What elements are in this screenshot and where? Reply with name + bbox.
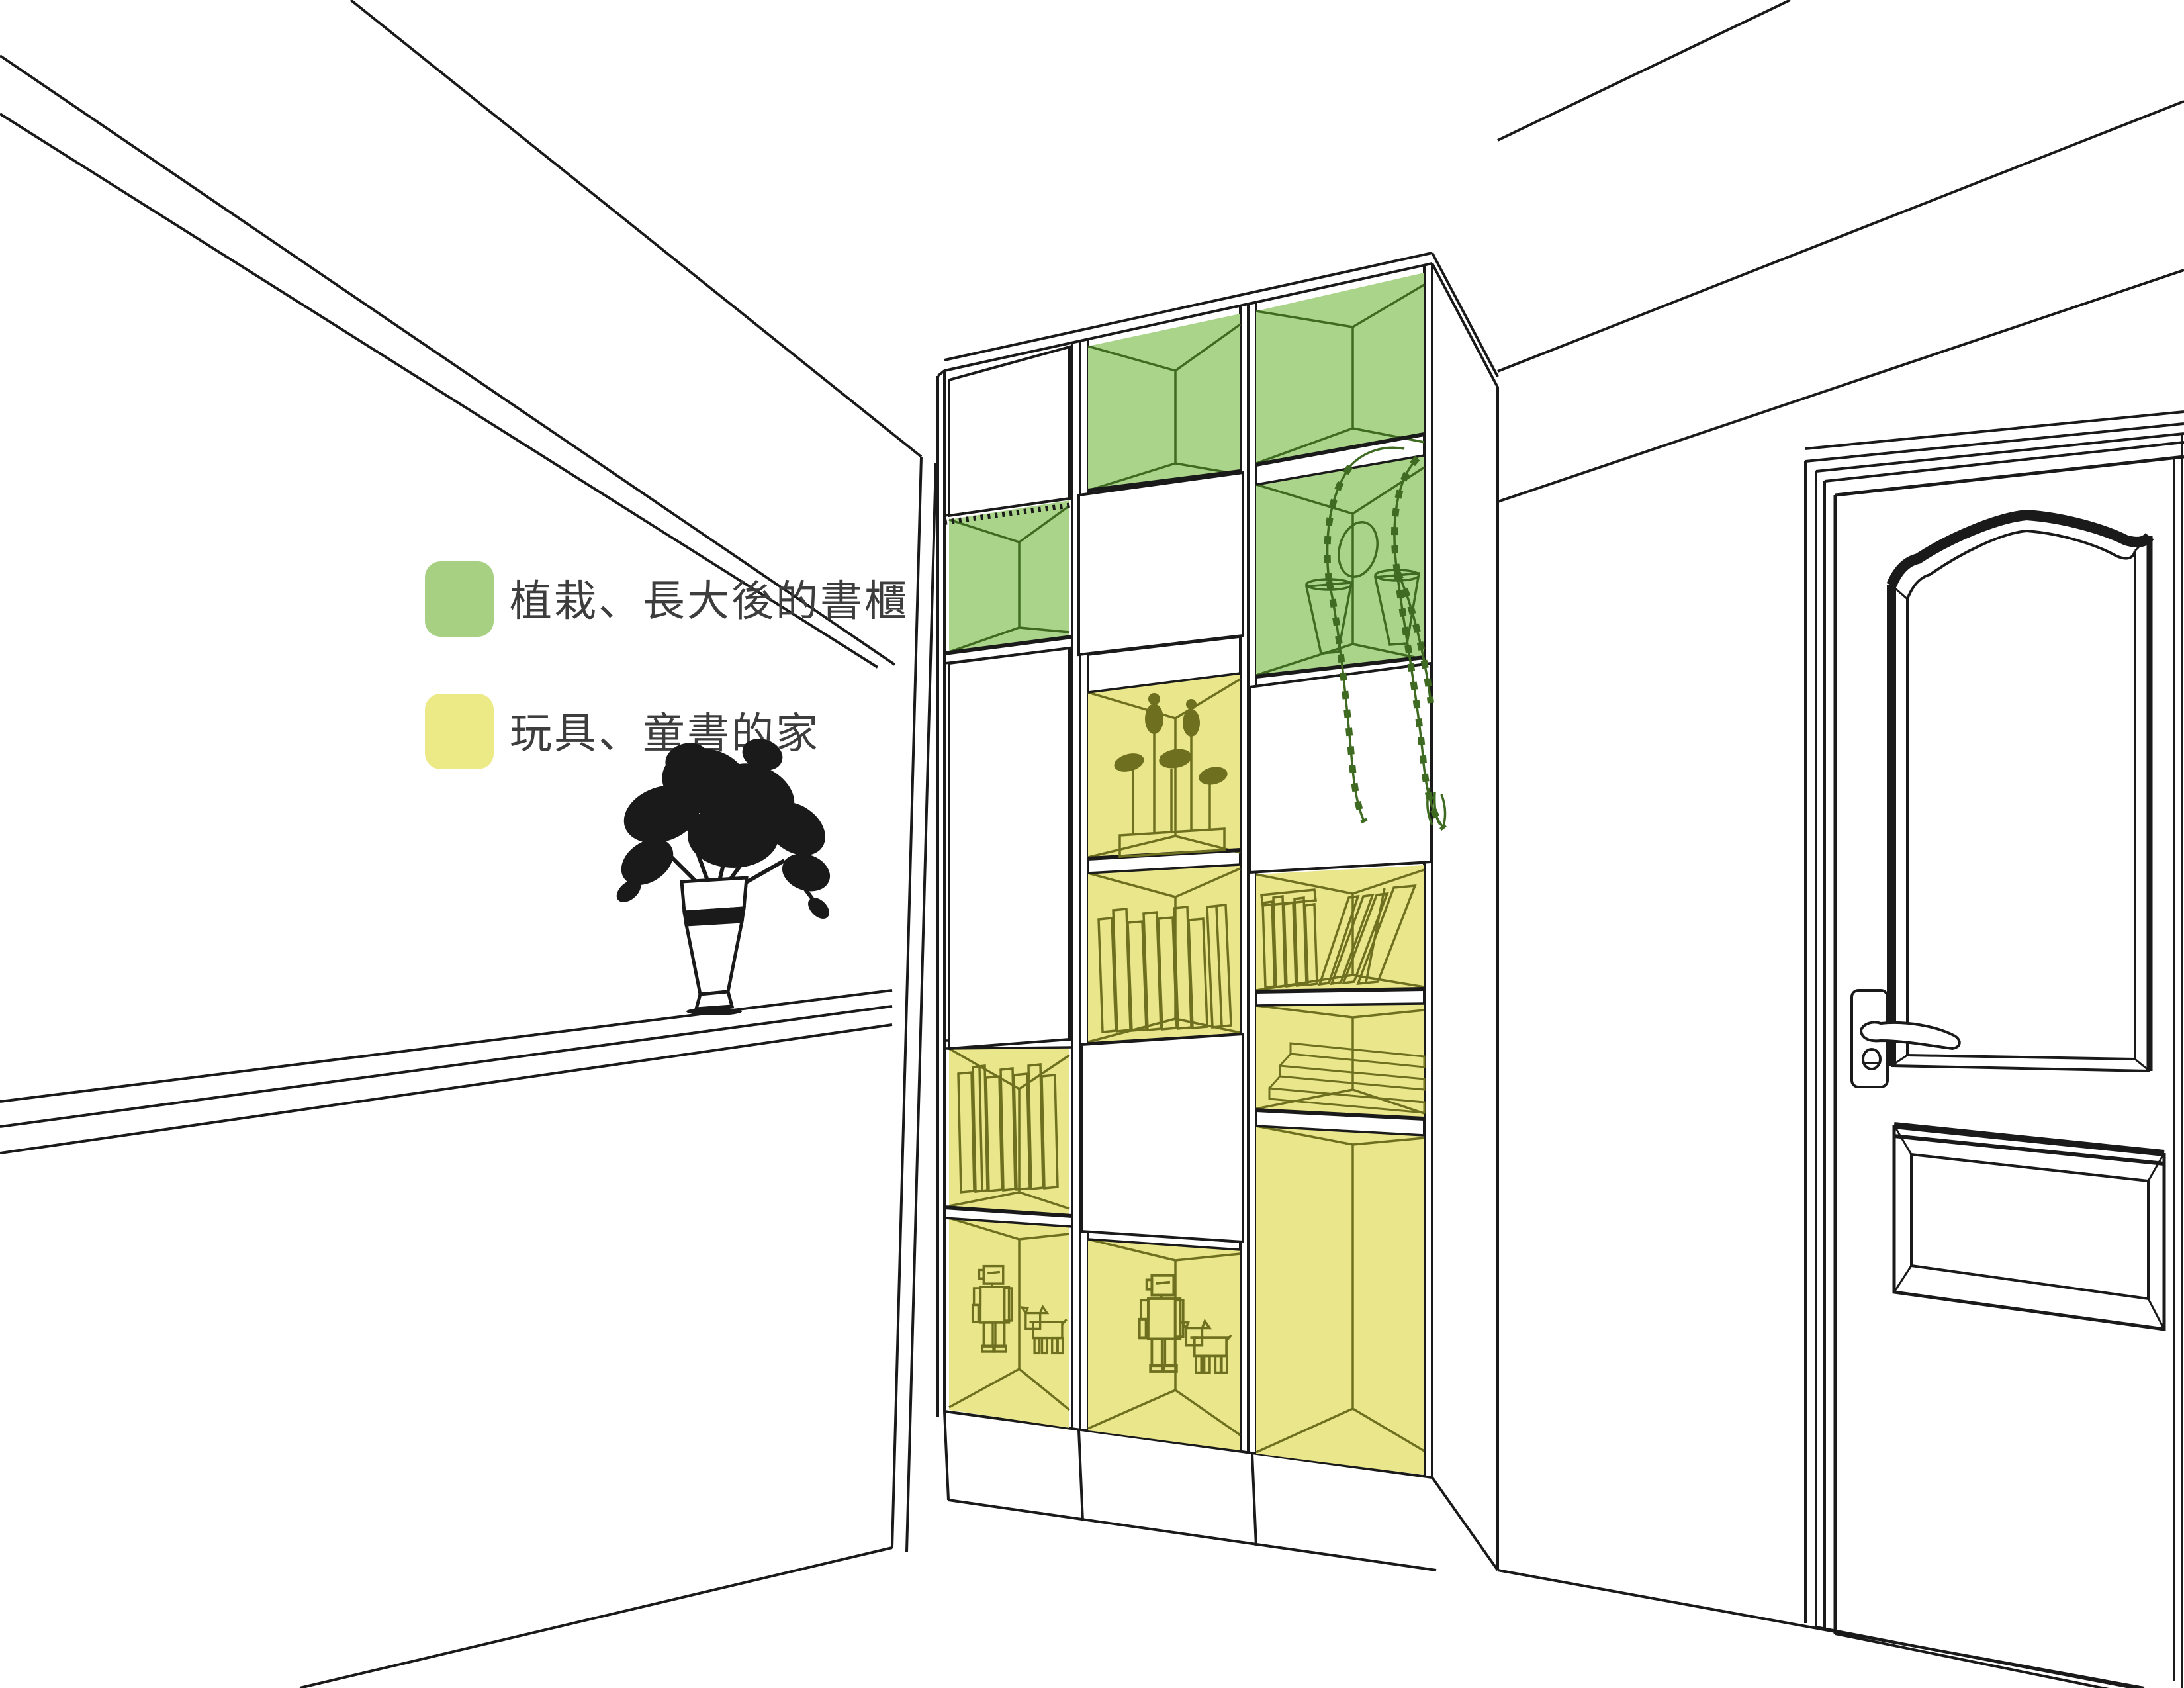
door-left-tall bbox=[949, 648, 1069, 1049]
ceiling-line-right-wall bbox=[1498, 101, 2184, 371]
vase-shadow bbox=[686, 1008, 742, 1015]
vase-body bbox=[686, 921, 742, 994]
toe-kick-seam-2 bbox=[1252, 1454, 1256, 1546]
legend-chip-yellow bbox=[425, 694, 494, 769]
floor-line-left-wall bbox=[300, 1548, 892, 1688]
door-arched-panel bbox=[1891, 515, 2150, 1071]
vase-rim bbox=[682, 878, 747, 912]
cell-right-bottom bbox=[1256, 1126, 1424, 1475]
bookshelf bbox=[938, 253, 1498, 1570]
legend-chip-green bbox=[425, 561, 494, 637]
legend-label-green: 植栽、長大後的書櫃 bbox=[510, 577, 909, 626]
door bbox=[1805, 412, 2184, 1688]
legend: 植栽、長大後的書櫃 玩具、童書的家 bbox=[425, 561, 909, 769]
toe-kick-seam bbox=[1079, 1430, 1083, 1521]
cell-right-stairs bbox=[1256, 1004, 1424, 1119]
door-middle-upper bbox=[1079, 473, 1243, 655]
toe-kick-left bbox=[944, 1411, 948, 1500]
ceiling-line-upper-right bbox=[1498, 0, 1790, 140]
wall-corner-line-2 bbox=[907, 463, 936, 1552]
door-right bbox=[1250, 663, 1431, 872]
chair-rail-bottom bbox=[0, 1025, 892, 1153]
toe-kick-bottom bbox=[948, 1500, 1436, 1570]
door-middle-lower bbox=[1081, 1034, 1243, 1242]
door-handle bbox=[1852, 990, 1960, 1087]
room-illustration: 植栽、長大後的書櫃 玩具、童書的家 bbox=[0, 0, 2184, 1688]
vase-with-plant bbox=[615, 736, 833, 1015]
keyhole bbox=[1863, 1049, 1880, 1069]
chair-rail-mid bbox=[0, 1006, 892, 1127]
door-threshold bbox=[1816, 1627, 2182, 1688]
chair-rail-top bbox=[0, 990, 892, 1102]
door-bottom-panel bbox=[1894, 1125, 2164, 1329]
vase-foot bbox=[696, 992, 732, 1009]
vase bbox=[682, 878, 747, 1015]
